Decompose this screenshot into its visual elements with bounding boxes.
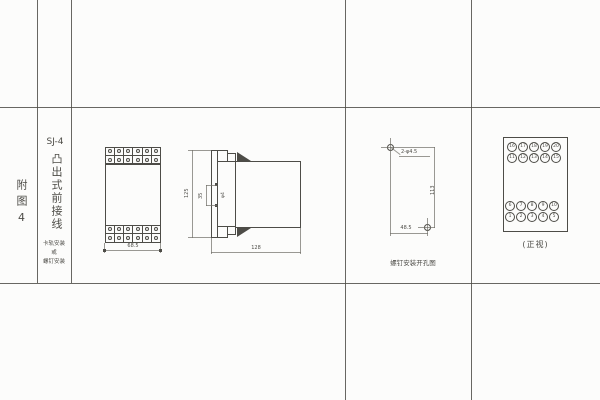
panel-divider-2 xyxy=(471,0,472,400)
drill-width-dimension: 48.5 xyxy=(388,226,424,231)
leader-underline xyxy=(399,156,430,157)
front-bottom-terminal-strip xyxy=(105,225,161,242)
sheet-bottom-rule xyxy=(0,283,600,284)
terminal-15: 15 xyxy=(551,153,561,163)
extension-line xyxy=(206,205,217,206)
hole-pitch-dimension: 35 xyxy=(199,193,204,199)
terminal-screw-icon xyxy=(154,236,158,240)
figure-number-label: 附图4 xyxy=(13,179,29,229)
terminal-8: 8 xyxy=(527,201,537,211)
terminal-screw-icon xyxy=(108,158,112,162)
dimension-endpoint xyxy=(103,249,106,252)
front-width-dimension: 68.5 xyxy=(105,244,161,249)
holes-callout: 2-φ4.5 xyxy=(401,150,417,155)
drill-height-dimension: 113 xyxy=(431,185,436,195)
terminal-17: 17 xyxy=(518,142,528,152)
mounting-note: 卡轨安装 或 螺钉安装 xyxy=(37,240,71,267)
relay-case-outline xyxy=(235,161,301,228)
terminal-screw-icon xyxy=(126,236,130,240)
front-top-terminal-strip xyxy=(105,147,161,164)
mounting-note-line-3: 螺钉安装 xyxy=(37,258,71,267)
terminal-screw-icon xyxy=(145,149,149,153)
terminal-19: 19 xyxy=(540,142,550,152)
front-terminal-cell xyxy=(151,233,161,243)
bottom-wedge xyxy=(237,228,251,237)
dimension-endpoint xyxy=(159,249,162,252)
terminal-view-caption: (正视) xyxy=(503,239,568,250)
drill-view-caption: 螺钉安装开孔图 xyxy=(372,257,454,267)
terminal-screw-icon xyxy=(136,236,140,240)
terminal-screw-icon xyxy=(126,227,130,231)
terminal-row-top-1: 1617181920 xyxy=(507,142,561,152)
terminal-screw-icon xyxy=(136,158,140,162)
terminal-14: 14 xyxy=(540,153,550,163)
extension-line xyxy=(300,228,301,254)
terminal-screw-icon xyxy=(126,149,130,153)
terminal-16: 16 xyxy=(507,142,517,152)
side-depth-dimension: 128 xyxy=(226,246,286,251)
hole-pitch-dimension-line xyxy=(206,185,207,206)
depth-dimension-line xyxy=(211,252,301,253)
terminal-18: 18 xyxy=(529,142,539,152)
terminal-screw-icon xyxy=(145,236,149,240)
panel-divider-1 xyxy=(345,0,346,400)
height-dimension-line xyxy=(192,150,193,238)
extension-line xyxy=(206,185,217,186)
terminal-screw-icon xyxy=(154,158,158,162)
terminal-screw-icon xyxy=(126,158,130,162)
terminal-screw-icon xyxy=(108,149,112,153)
terminal-screw-icon xyxy=(117,236,121,240)
mounting-flange xyxy=(211,150,218,238)
terminal-11: 11 xyxy=(507,153,517,163)
terminal-13: 13 xyxy=(529,153,539,163)
terminal-screw-icon xyxy=(136,149,140,153)
terminal-screw-icon xyxy=(136,227,140,231)
terminal-row-bottom-1: 678910 xyxy=(505,201,559,211)
terminal-4: 4 xyxy=(538,212,548,222)
wiring-type-label: 凸出式前接线 xyxy=(48,153,64,231)
leader-line xyxy=(390,147,400,155)
terminal-screw-icon xyxy=(117,149,121,153)
terminal-2: 2 xyxy=(516,212,526,222)
terminal-screw-icon xyxy=(108,236,112,240)
terminal-screw-icon xyxy=(145,158,149,162)
side-height-dimension: 125 xyxy=(185,188,190,198)
terminal-6: 6 xyxy=(505,201,515,211)
terminal-12: 12 xyxy=(518,153,528,163)
terminal-row-top-2: 1112131415 xyxy=(507,153,561,163)
terminal-10: 10 xyxy=(549,201,559,211)
terminal-1: 1 xyxy=(505,212,515,222)
terminal-screw-icon xyxy=(117,227,121,231)
mounting-note-line-2: 或 xyxy=(37,249,71,258)
terminal-screw-icon xyxy=(108,227,112,231)
width-dimension-line xyxy=(104,250,161,251)
terminal-screw-icon xyxy=(145,227,149,231)
terminal-screw-icon xyxy=(154,149,158,153)
hole-diameter-label: φ4 xyxy=(222,192,227,198)
drill-width-dimension-line xyxy=(390,233,428,234)
terminal-5: 5 xyxy=(549,212,559,222)
sheet-top-rule xyxy=(0,107,600,108)
terminal-3: 3 xyxy=(527,212,537,222)
terminal-screw-icon xyxy=(117,158,121,162)
title-column-divider-right xyxy=(71,0,72,283)
mounting-note-line-1: 卡轨安装 xyxy=(37,240,71,249)
terminal-20: 20 xyxy=(551,142,561,152)
terminal-screw-icon xyxy=(154,227,158,231)
front-body-outline xyxy=(105,163,161,226)
terminal-9: 9 xyxy=(538,201,548,211)
drawing-sheet: 附图4 SJ-4 凸出式前接线 卡轨安装 或 螺钉安装 68.5 125 xyxy=(0,0,600,400)
terminal-7: 7 xyxy=(516,201,526,211)
terminal-row-bottom-2: 12345 xyxy=(505,212,559,222)
extension-line xyxy=(188,150,213,151)
top-wedge xyxy=(237,152,251,161)
model-label: SJ-4 xyxy=(39,137,71,147)
extension-line xyxy=(188,237,213,238)
centerline-vertical-top-hole xyxy=(390,138,391,236)
